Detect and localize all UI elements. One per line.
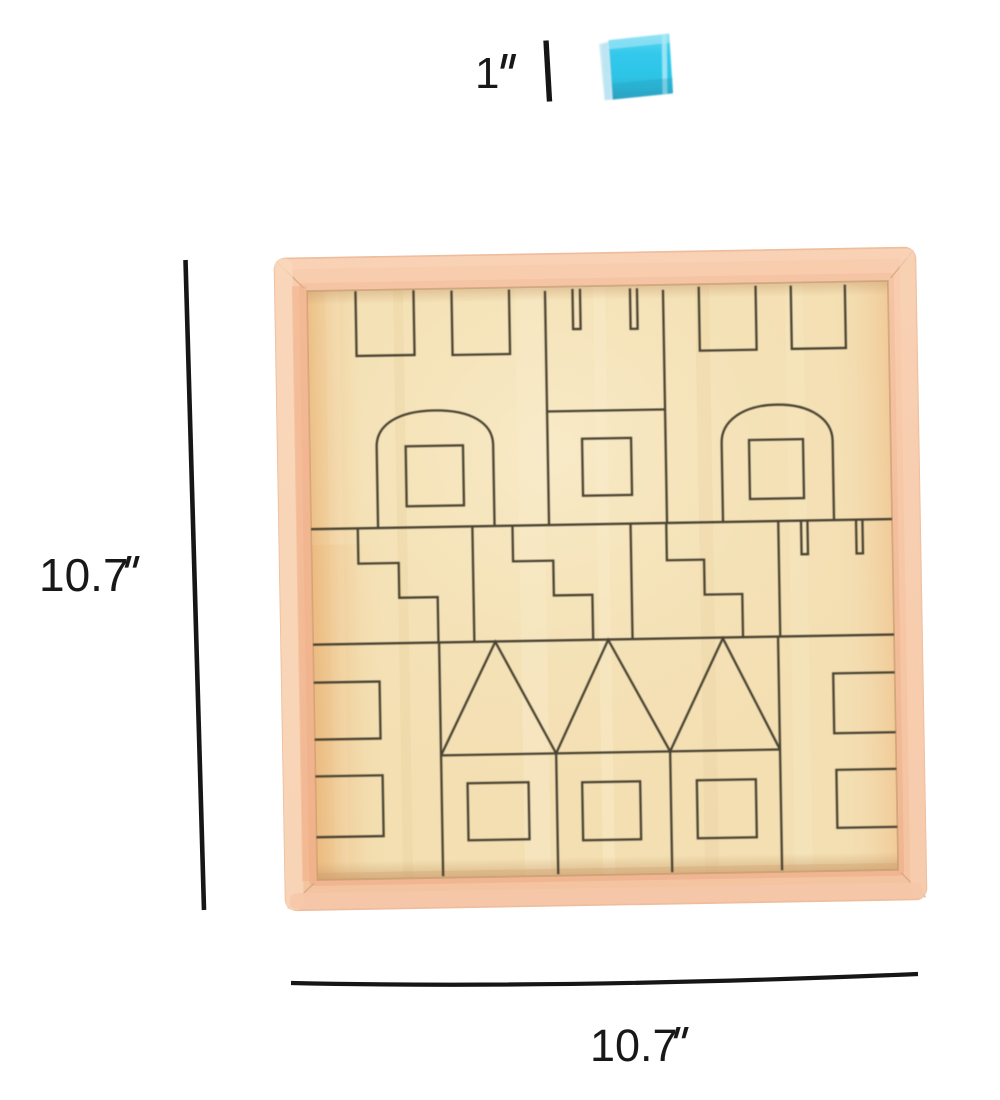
- svg-text:10.7: 10.7: [590, 1020, 678, 1071]
- svg-text:10.7: 10.7: [39, 549, 129, 601]
- svg-text:1: 1: [475, 49, 499, 98]
